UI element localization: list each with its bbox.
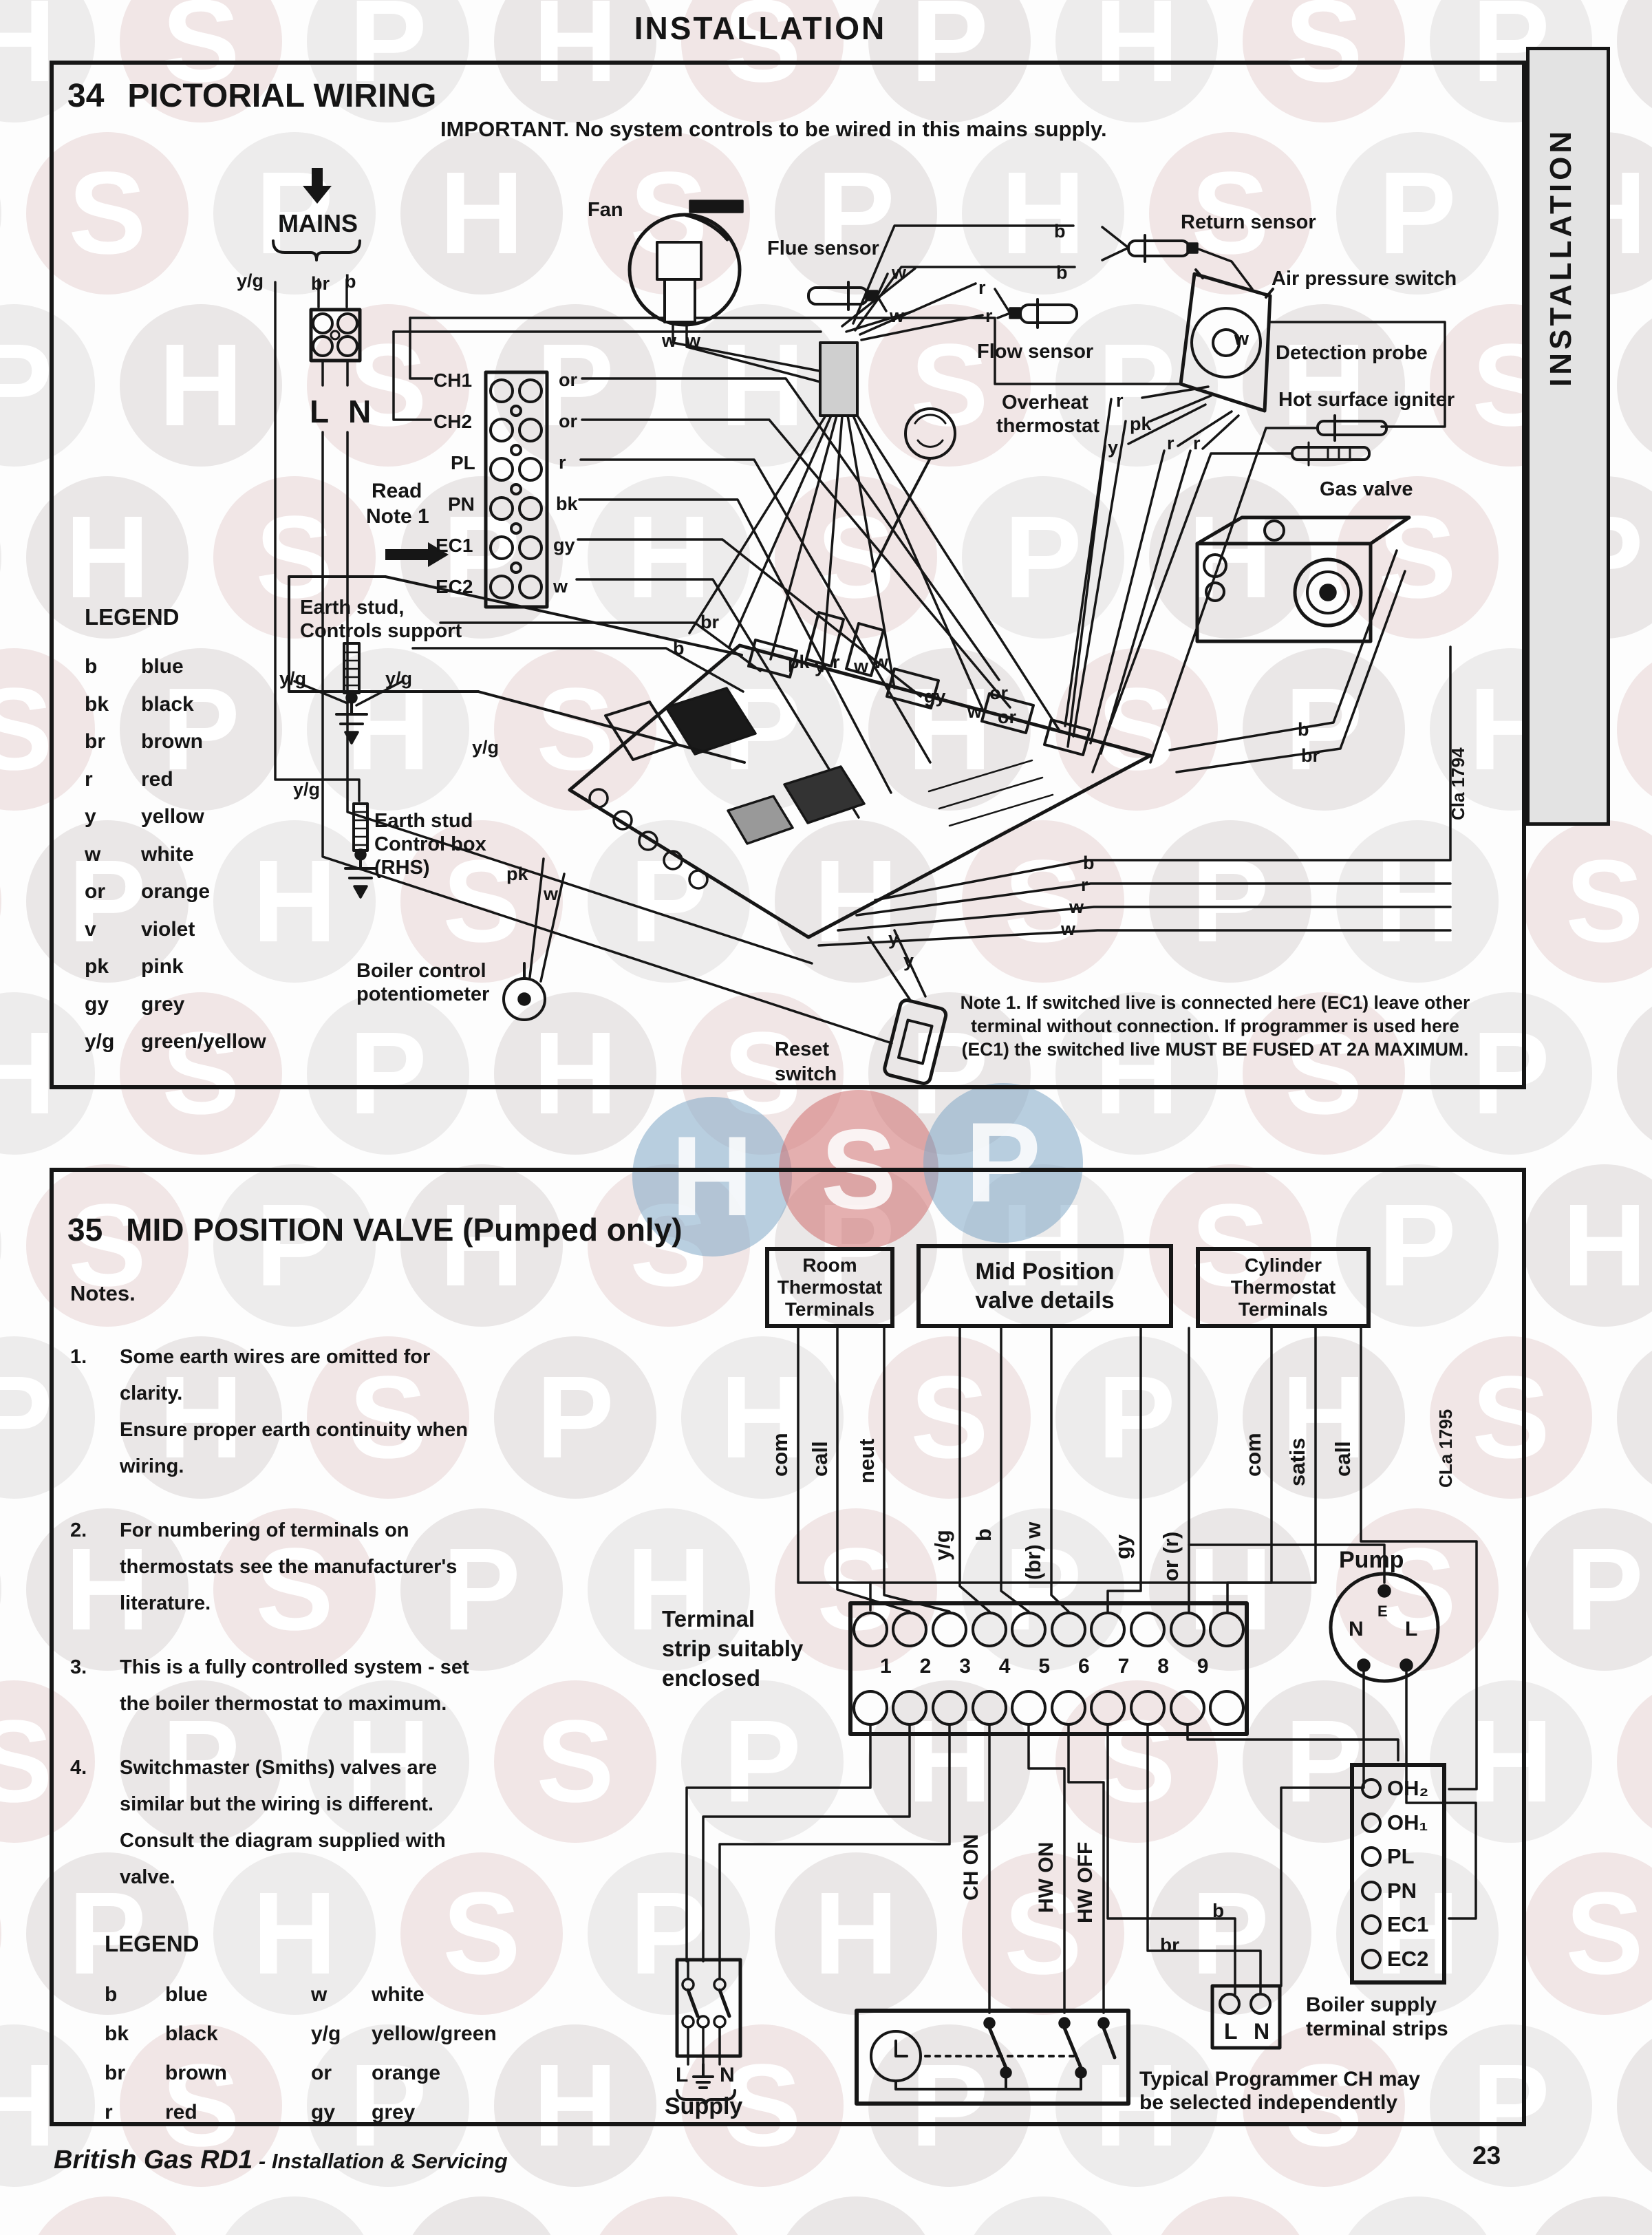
section-title: PICTORIAL WIRING [127,78,436,114]
svg-text:H: H [1563,1180,1647,1311]
mid-position-valve-box: Mid Position valve details [916,1244,1173,1328]
page-header-title: INSTALLATION [0,10,1521,47]
legend-row: brbrown [105,2053,311,2093]
legend-abbr: br [105,2053,165,2093]
legend-color-name: red [141,768,173,791]
wire-color-label: gy [924,687,946,706]
legend-row: bkblack [105,2014,311,2053]
box-line: Mid Position [975,1257,1114,1286]
legend-color-name: red [165,2101,197,2124]
box-line: Cylinder [1245,1254,1322,1276]
cylinder-terminal-label: call [1332,1441,1355,1477]
wire-color-label: y [888,929,899,948]
wire-color-label: y/g [293,780,320,799]
cylinder-terminal-label: satis [1287,1437,1309,1486]
programmer-channel-label: HW ON [1036,1842,1058,1913]
terminal-circle-icon [1361,1881,1382,1901]
section-number: 35 [67,1212,103,1248]
legend-abbr: gy [311,2093,372,2132]
legend-color-name: grey [372,2101,415,2124]
footer-doc-name: British Gas RD1 [54,2146,253,2174]
side-tab-label: INSTALLATION [1544,128,1578,387]
footer-doc-subtitle: - Installation & Servicing [253,2149,507,2173]
earth-stud-label: (RHS) [374,857,430,878]
note-text: Some earth wires are omitted forclarity.… [120,1339,468,1485]
boiler-supply-label: terminal strips [1306,2018,1448,2040]
page-number: 23 [1472,2141,1501,2170]
legend-color-name: blue [165,1983,208,2006]
manual-page: HSPHSPHSPHHSPHSPHSPHPHSPHSPHSPPHSPHSPHSP… [0,0,1652,2235]
important-lead: IMPORTANT. [440,117,569,141]
terminal-label: EC1 [1387,1912,1428,1937]
terminal-label: OH₂ [1387,1776,1428,1801]
wire-color-label: w [892,263,906,282]
legend-row: bkblack [85,686,266,724]
terminal-label: EC2 [436,577,473,597]
svg-text:S: S [68,2212,146,2235]
wire-color-label: y/g [237,271,264,290]
legend-color-name: blue [141,655,184,678]
note-text: This is a fully controlled system - sett… [120,1649,469,1722]
notes-title: Notes. [70,1281,511,1306]
detection-probe-label: Detection probe [1276,343,1428,363]
wire-color-label: bk [556,494,578,513]
boiler-supply-terminal-strip-box: OH₂OH₁PLPNEC1EC2 [1350,1763,1446,1985]
wire-color-label: y/g [385,669,412,688]
box-line: Room [802,1254,857,1276]
legend-abbr: br [85,723,141,761]
legend-color-name: pink [141,955,184,978]
fan-label: Fan [588,200,623,220]
legend-row: rred [85,761,266,799]
legend-row: gygrey [311,2093,497,2132]
legend-color-name: grey [141,993,184,1016]
cylinder-terminal-label: com [1243,1433,1265,1477]
terminal-number: 3 [959,1656,971,1678]
legend-color-name: yellow/green [372,2022,497,2045]
terminal-circle-icon [1361,1914,1382,1935]
legend-row: bblue [85,648,266,686]
legend-col1: bbluebkblackbrbrownrred [105,1975,311,2132]
mains-ln-label: L N [310,395,376,428]
legend-abbr: r [105,2093,165,2132]
terminal-number: 4 [999,1656,1011,1678]
box-line: Terminals [1238,1298,1328,1320]
wire-color-label: pk [788,652,810,672]
wire-color-label: w [967,702,982,721]
legend-color-name: yellow [141,805,204,828]
wire-color-label: r [1167,434,1174,453]
legend-35: LEGEND bbluebkblackbrbrownrred wwhitey/g… [105,1931,497,2132]
legend-abbr: y [85,798,141,836]
wire-color-label: or [998,707,1016,727]
earth-stud-label: Earth stud, [300,597,404,618]
wire-color-label: w [890,306,904,325]
legend-abbr: bk [85,686,141,724]
wire-color-label: br [700,612,719,632]
note-line: terminal without connection. If programm… [953,1014,1477,1038]
section-title: MID POSITION VALVE (Pumped only) [126,1212,682,1248]
wire-color-label: w [1234,329,1249,348]
legend-row: gygrey [85,986,266,1024]
supply-terminal: L [676,2064,688,2086]
svg-text:H: H [1563,2212,1647,2235]
legend-row: ororange [311,2053,497,2093]
wire-color-label: pk [506,864,528,884]
legend-items: bbluebkblackbrbrownrredyyellowwwhiteoror… [85,648,266,1061]
wire-color-label: w [686,331,700,350]
figure-code: CLa 1795 [1437,1409,1455,1488]
wire-color-label: r [1116,391,1124,410]
legend-34: LEGEND bbluebkblackbrbrownrredyyellowwwh… [85,604,266,1061]
wire-color-label: b [1212,1901,1224,1921]
svg-text:P: P [817,2212,894,2235]
wire-color-label: br [311,274,330,293]
legend-row: ororange [85,873,266,911]
legend-row: wwhite [311,1975,497,2014]
note-1-text: Note 1. If switched live is connected he… [953,991,1477,1061]
legend-abbr: r [85,761,141,799]
legend-row: brbrown [85,723,266,761]
wire-color-label: r [985,306,993,325]
wire-color-label: w [1061,919,1075,939]
svg-text:H: H [0,1008,56,1139]
svg-text:H: H [0,2040,56,2171]
wire-color-label: w [553,577,568,596]
room-terminal-label: call [809,1441,832,1477]
terminal-circle-icon [1361,1846,1382,1867]
terminal-label: PL [1387,1844,1415,1869]
legend-color-name: black [165,2022,218,2045]
svg-text:S: S [1191,2212,1269,2235]
svg-text:P: P [255,2212,333,2235]
room-thermostat-box: Room Thermostat Terminals [765,1247,894,1328]
wire-color-label: br [1301,746,1320,765]
note-number: 4. [70,1750,120,1896]
pump-terminal: N [1349,1618,1364,1640]
valve-wire-label: or (r) [1160,1532,1183,1581]
reset-switch-label: Reset [775,1039,829,1060]
box-line: Terminals [785,1298,875,1320]
wire-color-label: y [815,656,825,676]
earth-stud-label: Earth stud [374,811,473,831]
valve-wire-label: y/g [932,1530,954,1561]
terminal-label: CH1 [433,370,472,390]
wire-color-label: b [1083,853,1095,873]
legend-col2: wwhitey/gyellow/greenororangegygrey [311,1975,497,2132]
wire-color-label: r [1081,875,1088,895]
cylinder-thermostat-box: Cylinder Thermostat Terminals [1196,1247,1371,1328]
mains-label: MAINS [278,211,358,237]
terminal-number: 6 [1078,1656,1090,1678]
wire-color-label: br [1160,1935,1179,1955]
wire-color-label: or [559,411,577,431]
legend-title: LEGEND [85,604,266,630]
igniter-label: Hot surface igniter [1278,389,1455,410]
legend-color-name: violet [141,918,195,941]
note-number: 2. [70,1512,120,1622]
svg-text:P: P [1565,1524,1643,1655]
legend-row: y/ggreen/yellow [85,1023,266,1061]
terminal-number: 1 [880,1656,892,1678]
wire-color-label: pk [1130,414,1152,434]
wire-color-label: y [1108,438,1118,457]
read-note-label: Read [372,480,422,502]
terminal-strip-label: Terminal [662,1607,755,1632]
note-item: 4.Switchmaster (Smiths) valves aresimila… [70,1750,511,1896]
notes-list: 1.Some earth wires are omitted forclarit… [70,1339,511,1896]
figure-code: Cla 1794 [1449,747,1468,820]
boiler-terminal-row: EC1 [1361,1912,1442,1937]
svg-text:S: S [630,2212,707,2235]
wire-color-label: w [1069,897,1084,917]
legend-abbr: pk [85,948,141,986]
legend-abbr: b [85,648,141,686]
legend-color-name: orange [141,880,210,903]
legend-abbr: w [85,836,141,874]
terminal-number: 9 [1197,1656,1209,1678]
terminal-number: 8 [1157,1656,1169,1678]
boiler-supply-label: Boiler supply [1306,1994,1437,2016]
overheat-label: Overheat [1002,392,1088,413]
terminal-number: 5 [1038,1656,1050,1678]
programmer-channel-label: CH ON [961,1834,983,1901]
svg-text:S: S [1565,836,1643,967]
legend-color-name: green/yellow [141,1030,266,1053]
valve-wire-label: b [973,1528,996,1541]
air-pressure-switch-label: Air pressure switch [1272,268,1457,289]
wire-color-label: w [874,652,888,672]
box-line: Thermostat [1231,1276,1335,1298]
wire-color-label: b [1056,263,1068,282]
pump-label: Pump [1339,1548,1404,1573]
terminal-label: EC1 [436,535,473,555]
svg-text:P: P [0,1352,53,1483]
legend-abbr: gy [85,986,141,1024]
terminal-label: PN [1387,1879,1417,1903]
wire-color-label: or [989,683,1008,703]
legend-color-name: orange [372,2062,440,2084]
programmer-note: Typical Programmer CH may [1139,2068,1420,2090]
room-terminal-label: neut [856,1439,879,1484]
terminal-label: CH2 [433,411,472,431]
boiler-ln-label: L [1224,2020,1238,2044]
legend-title: LEGEND [105,1931,497,1957]
boiler-terminal-row: OH₁ [1361,1810,1442,1835]
boiler-ln-label: N [1254,2020,1269,2044]
legend-abbr: bk [105,2014,165,2053]
potentiometer-label: Boiler control [356,961,486,981]
boiler-terminal-row: EC2 [1361,1947,1442,1971]
wire-color-label: r [559,453,566,472]
note-line: Note 1. If switched live is connected he… [953,991,1477,1014]
note-item: 2.For numbering of terminals onthermosta… [70,1512,511,1622]
wire-color-label: or [559,370,577,389]
gas-valve-label: Gas valve [1320,479,1413,500]
wire-color-label: y/g [279,669,306,688]
note-item: 1.Some earth wires are omitted forclarit… [70,1339,511,1485]
flue-sensor-label: Flue sensor [767,238,879,259]
wire-color-label: r [978,278,986,297]
legend-row: y/gyellow/green [311,2014,497,2053]
terminal-label: OH₁ [1387,1810,1428,1835]
terminal-label: PN [448,494,475,514]
wire-color-label: b [1298,720,1309,739]
terminal-number: 2 [920,1656,932,1678]
read-note-label: Note 1 [366,506,429,528]
terminal-circle-icon [1361,1778,1382,1799]
section-number: 34 [67,78,104,114]
wire-color-label: b [673,639,685,658]
room-terminal-label: com [769,1433,792,1477]
legend-abbr: v [85,911,141,949]
wire-color-label: w [854,656,868,676]
boiler-terminal-row: PN [1361,1879,1442,1903]
return-sensor-label: Return sensor [1181,212,1316,233]
legend-abbr: y/g [311,2014,372,2053]
important-note: IMPORTANT. No system controls to be wire… [440,117,1107,142]
legend-abbr: b [105,1975,165,2014]
terminal-strip-label: strip suitably [662,1637,803,1661]
legend-abbr: or [85,873,141,911]
note-item: 3.This is a fully controlled system - se… [70,1649,511,1722]
earth-stud-label: Control box [374,834,486,855]
legend-row: bblue [105,1975,311,2014]
boiler-terminal-row: OH₂ [1361,1776,1442,1801]
terminal-label: PL [451,453,475,473]
overheat-label: thermostat [996,416,1099,436]
note-text: For numbering of terminals onthermostats… [120,1512,457,1622]
legend-abbr: w [311,1975,372,2014]
legend-row: yyellow [85,798,266,836]
legend-row: vviolet [85,911,266,949]
wire-color-label: gy [553,535,575,555]
pump-terminal: L [1405,1618,1417,1640]
terminal-label: EC2 [1387,1947,1428,1971]
svg-text:S: S [1565,1868,1643,1999]
legend-row: wwhite [85,836,266,874]
legend-abbr: y/g [85,1023,141,1061]
svg-text:S: S [0,664,53,795]
wire-color-label: b [1054,222,1066,241]
legend-color-name: white [372,1983,425,2006]
note-number: 3. [70,1649,120,1722]
terminal-circle-icon [1361,1949,1382,1969]
svg-text:H: H [440,2212,524,2235]
programmer-channel-label: HW OFF [1075,1842,1097,1923]
valve-wire-label: gy [1112,1534,1135,1559]
wire-color-label: b [345,272,356,291]
legend-row: pkpink [85,948,266,986]
notes-block: Notes. 1.Some earth wires are omitted fo… [70,1281,511,1923]
wire-color-label: r [833,652,840,672]
footer-title: British Gas RD1 - Installation & Servici… [54,2146,508,2175]
legend-color-name: white [141,843,194,866]
wire-color-label: y [903,951,914,970]
note-text: Switchmaster (Smiths) valves aresimilar … [120,1750,446,1896]
box-line: Thermostat [777,1276,882,1298]
terminal-strip-label: enclosed [662,1667,760,1691]
supply-terminal: N [720,2064,735,2086]
potentiometer-label: potentiometer [356,984,489,1005]
box-line: valve details [975,1286,1114,1315]
wire-color-label: r [1193,434,1201,453]
wire-color-label: w [662,331,676,350]
reset-switch-label: switch [775,1064,837,1084]
section-35-heading: 35MID POSITION VALVE (Pumped only) [67,1211,683,1248]
valve-wire-label: (br) w [1022,1522,1045,1580]
important-rest: No system controls to be wired in this m… [569,117,1106,141]
wire-color-label: w [544,884,558,903]
note-number: 1. [70,1339,120,1485]
flow-sensor-label: Flow sensor [977,341,1093,362]
legend-color-name: brown [141,730,203,753]
legend-color-name: black [141,693,194,716]
note-line: (EC1) the switched live MUST BE FUSED AT… [953,1038,1477,1061]
terminal-circle-icon [1361,1812,1382,1833]
svg-text:P: P [1378,2212,1456,2235]
svg-text:P: P [0,320,53,451]
legend-row: rred [105,2093,311,2132]
svg-text:H: H [1001,2212,1086,2235]
supply-label: Supply [665,2095,742,2119]
svg-text:S: S [0,1696,53,1827]
programmer-note: be selected independently [1139,2092,1397,2114]
pump-terminal: E [1377,1603,1388,1619]
terminal-number: 7 [1118,1656,1130,1678]
legend-color-name: brown [165,2062,227,2084]
legend-abbr: or [311,2053,372,2093]
wire-color-label: y/g [472,738,499,757]
earth-stud-label: Controls support [300,621,462,641]
boiler-terminal-row: PL [1361,1844,1442,1869]
section-34-heading: 34PICTORIAL WIRING [67,77,436,115]
